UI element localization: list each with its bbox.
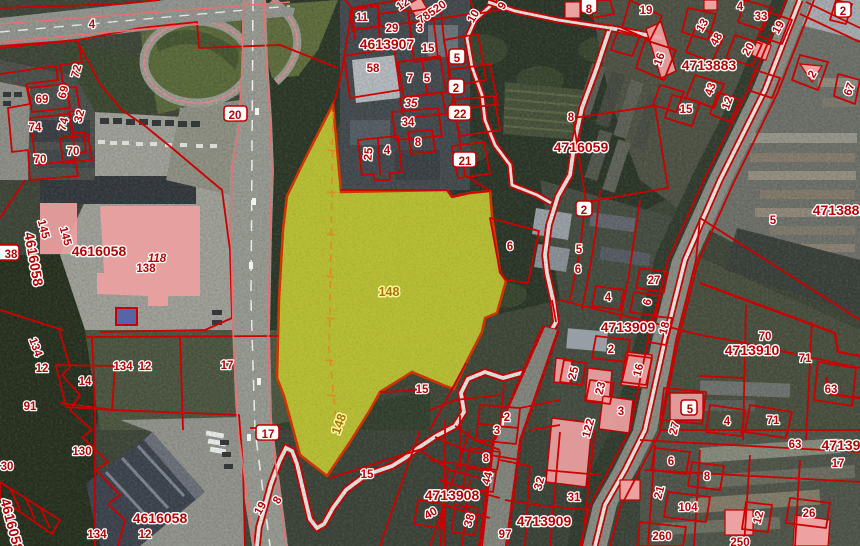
- svg-text:25: 25: [362, 147, 375, 161]
- svg-text:17: 17: [832, 458, 845, 470]
- svg-text:7: 7: [407, 73, 413, 85]
- svg-text:250: 250: [730, 537, 749, 546]
- svg-text:70: 70: [67, 146, 80, 158]
- svg-text:148: 148: [379, 285, 400, 299]
- svg-text:15: 15: [416, 384, 429, 396]
- svg-text:14: 14: [79, 376, 92, 388]
- svg-text:4713909: 4713909: [601, 319, 656, 335]
- svg-text:4716059: 4716059: [554, 139, 609, 155]
- svg-text:4: 4: [605, 292, 612, 304]
- svg-text:4616058: 4616058: [72, 243, 127, 259]
- svg-text:15: 15: [361, 469, 374, 481]
- svg-text:21: 21: [459, 156, 472, 168]
- svg-text:6: 6: [668, 456, 674, 468]
- svg-text:30: 30: [1, 461, 14, 473]
- svg-text:31: 31: [568, 492, 581, 504]
- svg-text:5: 5: [454, 53, 461, 65]
- svg-text:8: 8: [483, 453, 490, 465]
- svg-text:2: 2: [840, 6, 846, 18]
- svg-text:58: 58: [367, 63, 380, 75]
- svg-text:6: 6: [507, 241, 513, 253]
- svg-text:260: 260: [652, 531, 671, 543]
- svg-text:19: 19: [640, 5, 653, 17]
- svg-text:29: 29: [386, 23, 399, 35]
- svg-text:11: 11: [356, 12, 369, 24]
- svg-text:4713883: 4713883: [682, 57, 737, 73]
- svg-text:3: 3: [618, 406, 624, 418]
- svg-text:47139: 47139: [822, 437, 860, 453]
- svg-text:8: 8: [704, 471, 711, 483]
- svg-text:17: 17: [221, 360, 234, 372]
- svg-text:15: 15: [422, 43, 435, 55]
- svg-text:4713910: 4713910: [725, 342, 780, 358]
- svg-text:2: 2: [581, 205, 587, 217]
- svg-text:3: 3: [417, 23, 423, 35]
- svg-text:8: 8: [415, 137, 422, 149]
- svg-text:5: 5: [424, 73, 431, 85]
- svg-text:4713908: 4713908: [425, 487, 480, 503]
- svg-text:2: 2: [453, 83, 459, 95]
- svg-text:4: 4: [724, 416, 731, 428]
- svg-text:134: 134: [87, 529, 107, 541]
- svg-text:4713909: 4713909: [517, 513, 572, 529]
- svg-text:34: 34: [402, 117, 415, 129]
- svg-text:6: 6: [575, 264, 581, 276]
- svg-text:8: 8: [568, 112, 575, 124]
- svg-text:4: 4: [737, 1, 744, 13]
- svg-text:12: 12: [36, 363, 49, 375]
- svg-text:26: 26: [803, 508, 816, 520]
- svg-text:20: 20: [229, 110, 242, 122]
- svg-text:12: 12: [139, 361, 152, 373]
- svg-text:134: 134: [113, 361, 133, 373]
- svg-text:27: 27: [648, 275, 661, 287]
- svg-text:2: 2: [504, 412, 510, 424]
- svg-text:74: 74: [29, 122, 42, 134]
- svg-text:104: 104: [678, 502, 698, 514]
- svg-text:22: 22: [454, 109, 467, 121]
- svg-text:118: 118: [148, 253, 167, 265]
- svg-text:4: 4: [384, 145, 391, 157]
- svg-text:5: 5: [687, 404, 694, 416]
- svg-text:63: 63: [789, 439, 802, 451]
- svg-text:17: 17: [262, 429, 275, 441]
- svg-text:71: 71: [799, 353, 812, 365]
- svg-text:5: 5: [770, 215, 777, 227]
- svg-text:70: 70: [34, 154, 47, 166]
- svg-text:8: 8: [586, 4, 593, 16]
- svg-text:71: 71: [767, 415, 780, 427]
- svg-text:4616058: 4616058: [133, 510, 188, 526]
- svg-text:15: 15: [680, 104, 693, 116]
- svg-text:4: 4: [89, 19, 96, 31]
- svg-text:12: 12: [139, 529, 152, 541]
- svg-text:91: 91: [24, 401, 37, 413]
- svg-text:69: 69: [36, 94, 49, 106]
- svg-text:5: 5: [576, 244, 583, 256]
- svg-text:63: 63: [825, 384, 838, 396]
- svg-text:35: 35: [405, 98, 418, 110]
- svg-text:33: 33: [755, 11, 768, 23]
- svg-text:3: 3: [494, 425, 500, 437]
- svg-text:2: 2: [608, 344, 614, 356]
- svg-text:38: 38: [5, 249, 18, 261]
- svg-text:97: 97: [499, 529, 512, 541]
- svg-text:4713881: 4713881: [813, 202, 860, 218]
- svg-text:4613907: 4613907: [360, 36, 415, 52]
- svg-text:130: 130: [72, 446, 91, 458]
